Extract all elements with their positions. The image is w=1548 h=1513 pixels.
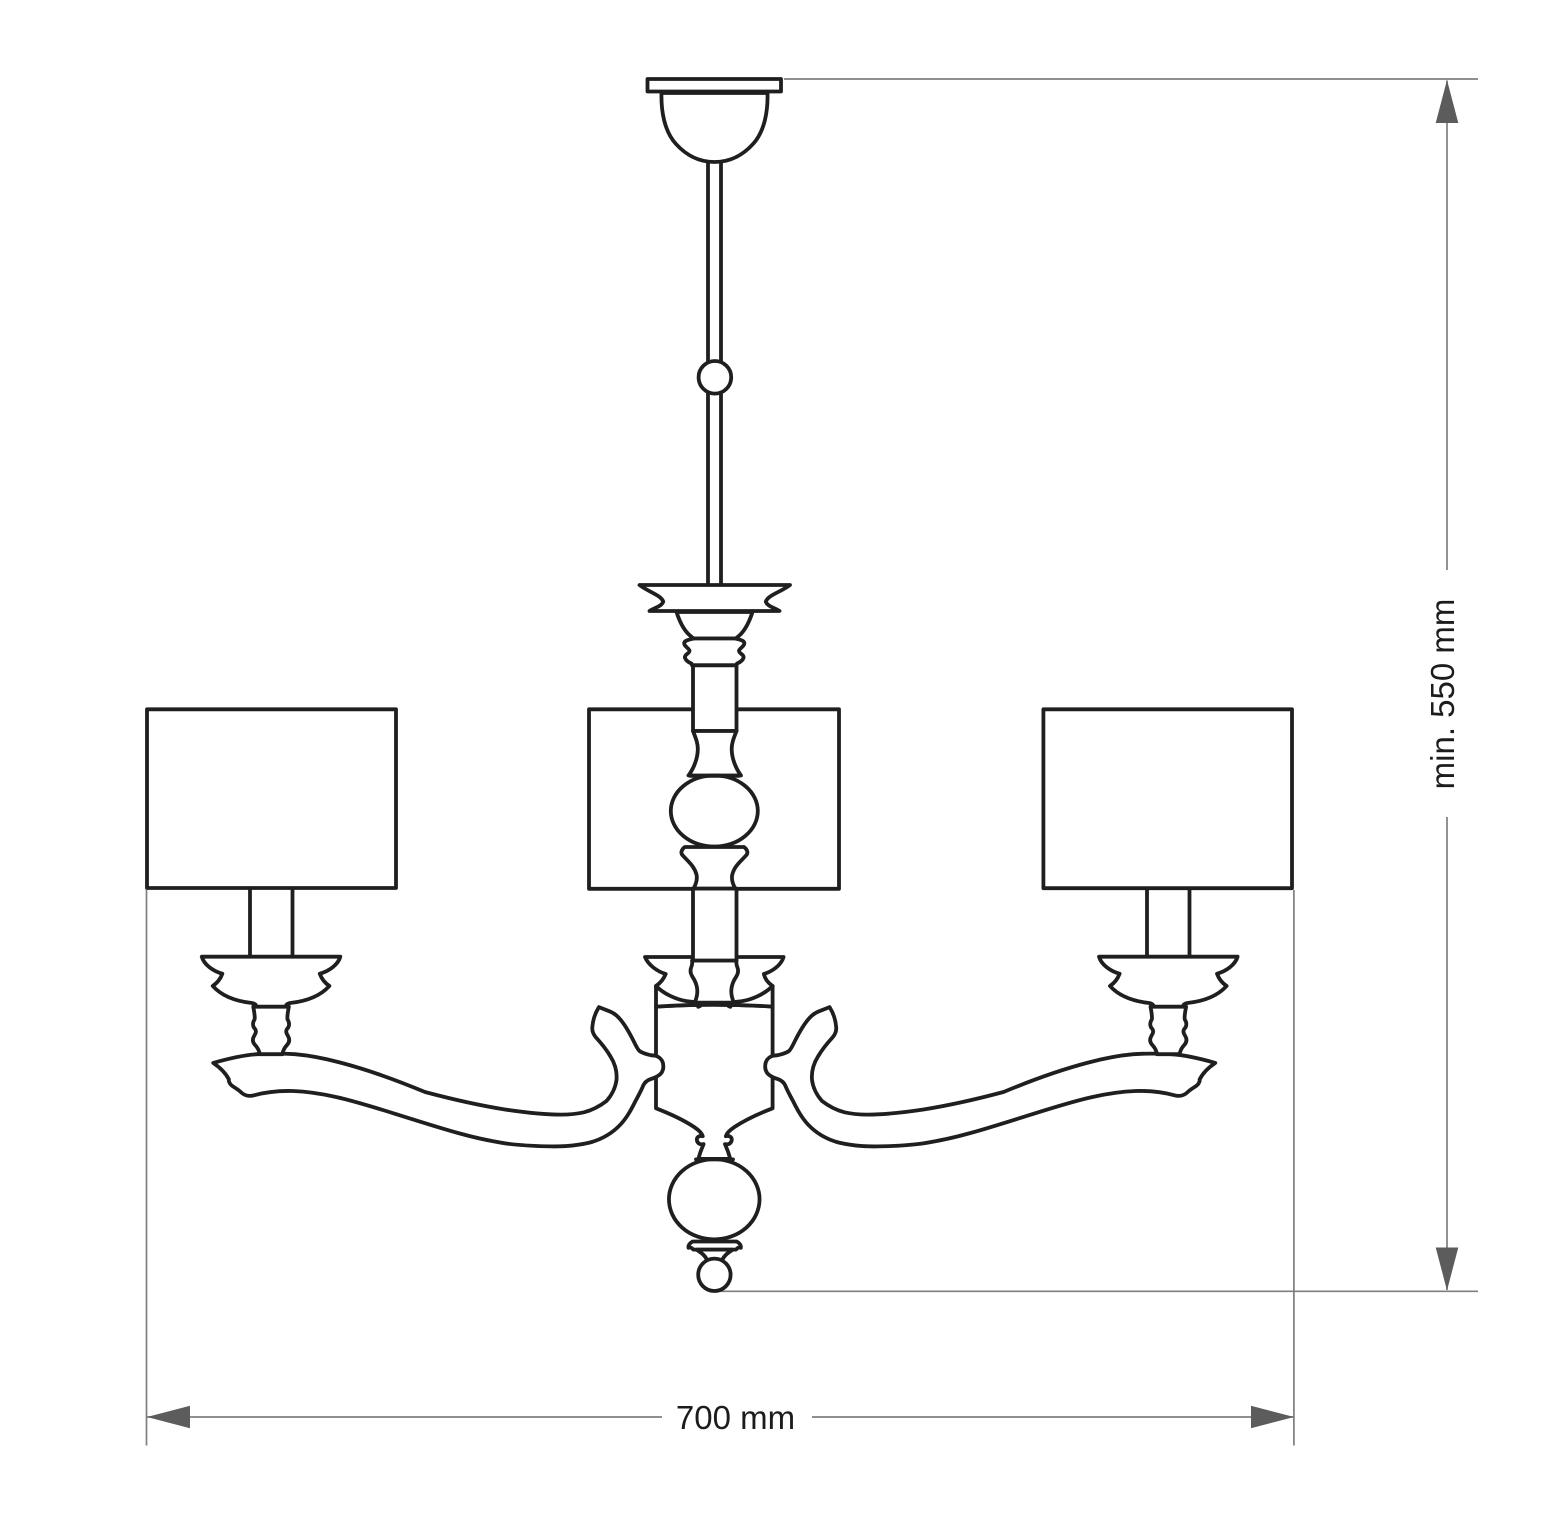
- svg-text:700 mm: 700 mm: [676, 1399, 795, 1436]
- svg-text:min. 550 mm: min. 550 mm: [1424, 599, 1461, 790]
